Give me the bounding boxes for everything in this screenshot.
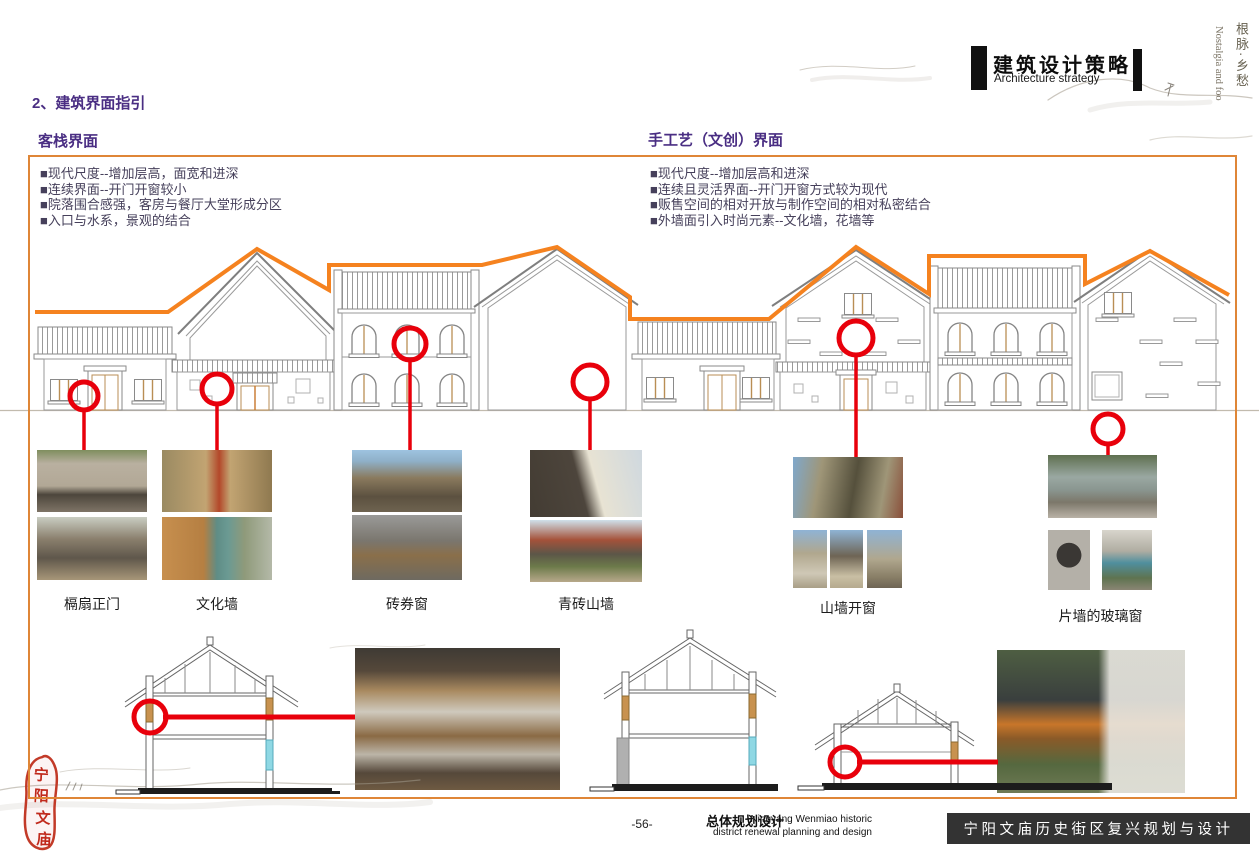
photo-caption: 砖券窗 bbox=[352, 594, 462, 614]
bullet-item: ■连续且灵活界面--开门开窗方式较为现代 bbox=[650, 182, 1090, 198]
bullet-item: ■院落围合感强，客房与餐厅大堂形成分区 bbox=[40, 197, 450, 213]
seal-char: 庙 bbox=[36, 830, 52, 849]
bullet-item: ■贩售空间的相对开放与制作空间的相对私密结合 bbox=[650, 197, 1090, 213]
page-number: -56- bbox=[618, 817, 666, 831]
photo-caption: 青砖山墙 bbox=[530, 594, 642, 614]
footer-en-line2: district renewal planning and design bbox=[700, 827, 872, 840]
bullet-item: ■现代尺度--增加层高和进深 bbox=[650, 166, 1090, 182]
bullet-item: ■连续界面--开门开窗较小 bbox=[40, 182, 450, 198]
footer-en-line1: Ningyang Wenmiao historic bbox=[700, 814, 872, 827]
photo-caption: 文化墙 bbox=[162, 594, 272, 614]
header-black-bar-right bbox=[1133, 49, 1142, 91]
footer-banner: 宁阳文庙历史街区复兴规划与设计 bbox=[947, 813, 1250, 844]
seal-char: 文 bbox=[35, 809, 52, 828]
content-frame bbox=[28, 155, 1237, 799]
panel-title-craft: 手工艺（文创）界面 bbox=[648, 129, 783, 150]
header-black-bar-left bbox=[971, 46, 987, 90]
footer-banner-title: 宁阳文庙历史街区复兴规划与设计 bbox=[964, 818, 1234, 839]
side-text-cn: 根脉·乡愁 bbox=[1232, 22, 1251, 132]
photo-caption: 山墙开窗 bbox=[788, 598, 908, 618]
bullet-list-craft: ■现代尺度--增加层高和进深 ■连续且灵活界面--开门开窗方式较为现代 ■贩售空… bbox=[650, 166, 1090, 228]
bullet-list-inn: ■现代尺度--增加层高，面宽和进深 ■连续界面--开门开窗较小 ■院落围合感强，… bbox=[40, 166, 450, 228]
footer-plan-subtitle-en: Ningyang Wenmiao historic district renew… bbox=[700, 814, 872, 839]
side-text-en: Nostalgia and foo bbox=[1213, 26, 1224, 144]
bullet-item: ■现代尺度--增加层高，面宽和进深 bbox=[40, 166, 450, 182]
photo-caption: 槅扇正门 bbox=[37, 594, 147, 614]
photo-caption: 片墙的玻璃窗 bbox=[1038, 606, 1163, 626]
panel-title-inn: 客栈界面 bbox=[38, 130, 98, 151]
bullet-item: ■入口与水系，景观的结合 bbox=[40, 213, 450, 229]
page-title: 2、建筑界面指引 bbox=[32, 92, 145, 113]
bullet-item: ■外墙面引入时尚元素--文化墙，花墙等 bbox=[650, 213, 1090, 229]
header-title-en: Architecture strategy bbox=[994, 73, 1099, 85]
